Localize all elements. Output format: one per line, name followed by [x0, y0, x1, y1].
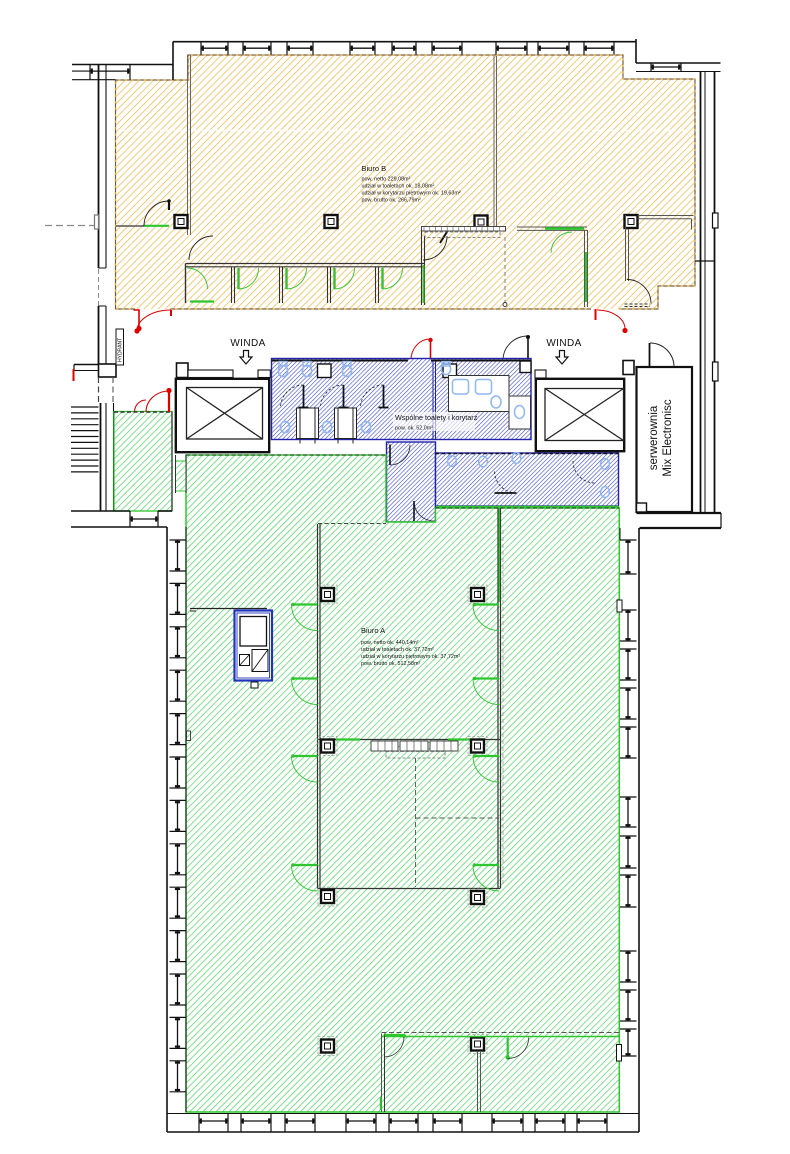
svg-text:serwerownia: serwerownia [648, 405, 660, 470]
svg-text:HYDRANT: HYDRANT [118, 338, 124, 362]
svg-text:WINDA: WINDA [546, 338, 581, 349]
svg-text:Mix Electronisc: Mix Electronisc [662, 399, 674, 477]
svg-text:udział w korytarzu piętrowym o: udział w korytarzu piętrowym ok. 19,63m² [362, 191, 461, 197]
svg-text:Biuro B: Biuro B [362, 164, 387, 173]
svg-text:WINDA: WINDA [230, 338, 265, 349]
svg-text:pow. netto 229,08m²: pow. netto 229,08m² [362, 177, 411, 183]
svg-text:pow. netto ok. 440,14m²: pow. netto ok. 440,14m² [361, 640, 419, 646]
svg-text:udział w toaletach ok. 18,08m²: udział w toaletach ok. 18,08m² [362, 184, 435, 190]
svg-text:Biuro A: Biuro A [361, 626, 385, 635]
svg-text:pow. ok. 52,0m²: pow. ok. 52,0m² [395, 426, 433, 432]
svg-text:Wspólne toalety i korytarz: Wspólne toalety i korytarz [395, 413, 478, 422]
svg-text:udział w korytarzu piętrowym o: udział w korytarzu piętrowym ok. 37,72m² [361, 654, 460, 660]
svg-text:udział w toaletach ok. 37,72m²: udział w toaletach ok. 37,72m² [361, 647, 434, 653]
svg-text:pow. brutto ok. 512,58m²: pow. brutto ok. 512,58m² [361, 661, 421, 667]
svg-text:pow. brutto ok. 266,79m²: pow. brutto ok. 266,79m² [362, 198, 422, 204]
